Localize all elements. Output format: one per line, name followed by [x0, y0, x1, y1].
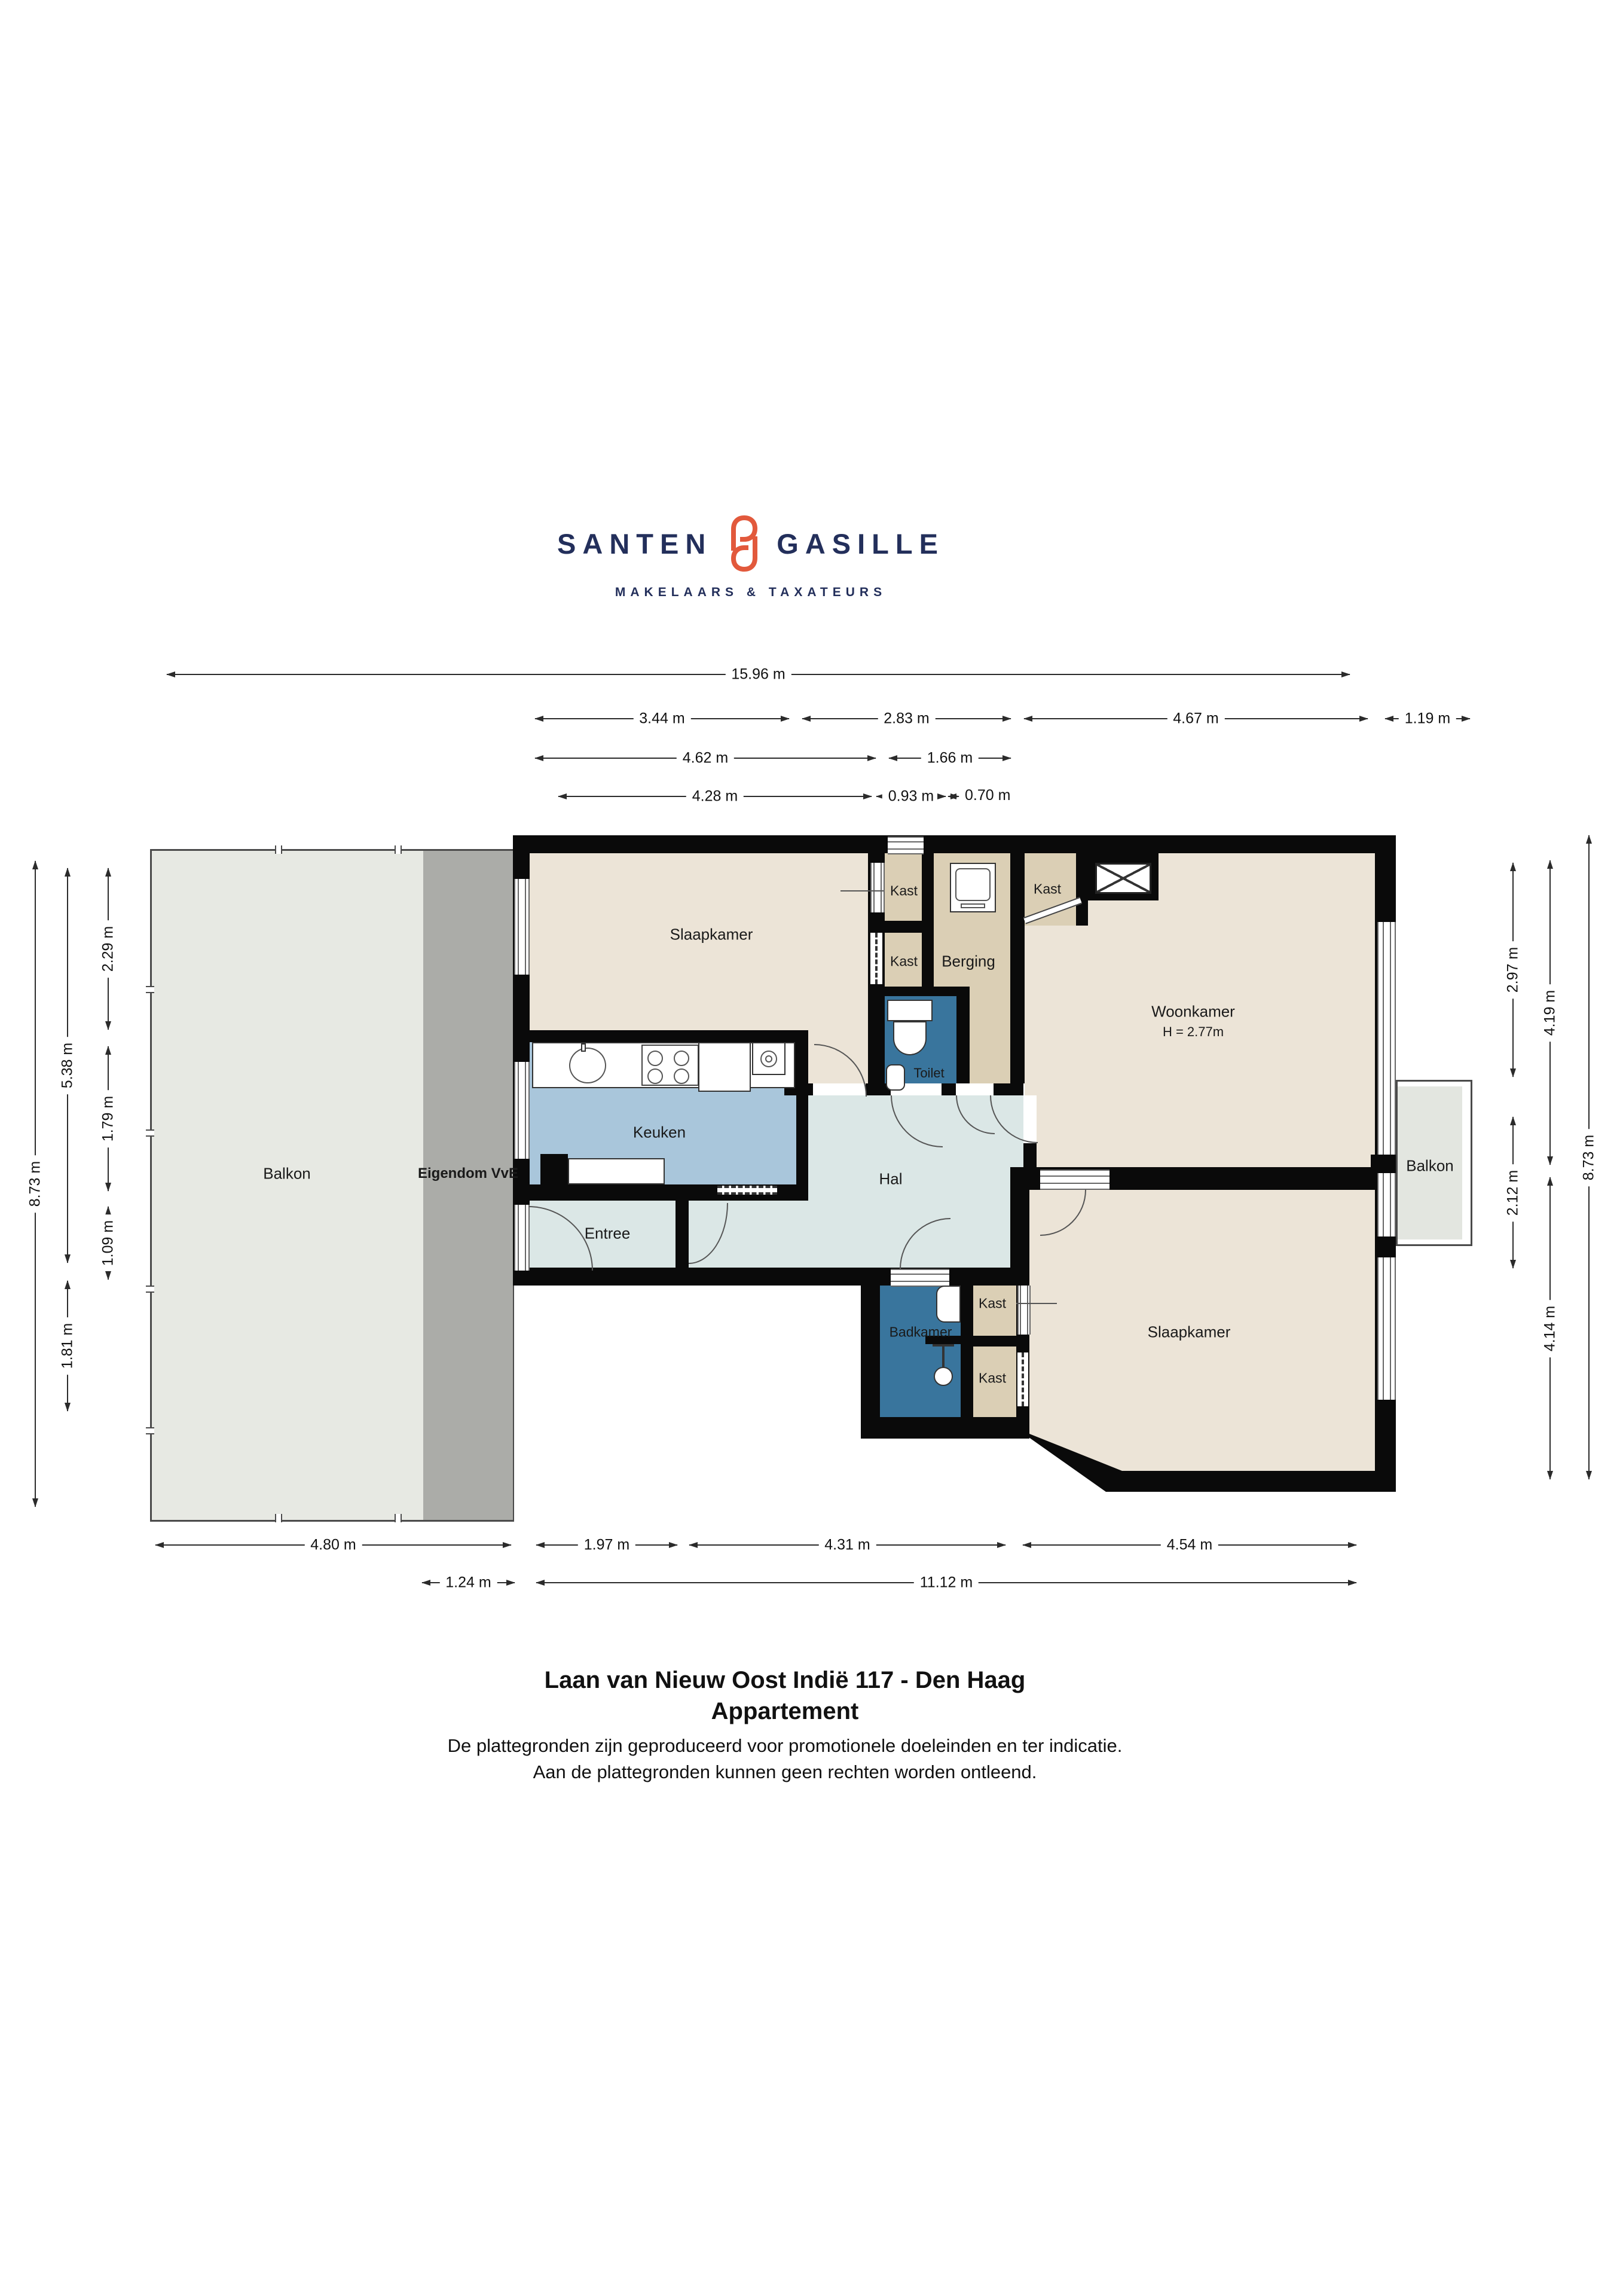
dim-right-3: 4.19 m	[1549, 860, 1551, 1165]
window	[1377, 1257, 1396, 1400]
address-title: Laan van Nieuw Oost Indië 117 - Den Haag	[0, 1665, 1570, 1696]
label-kitchen: Keuken	[633, 1123, 686, 1142]
wall	[1076, 853, 1088, 926]
label-leader	[1016, 1303, 1057, 1304]
door-gap	[891, 1269, 949, 1287]
label-balcony-left: Balkon	[263, 1165, 311, 1183]
balcony-tick	[146, 1286, 154, 1293]
balcony-tick	[395, 1514, 402, 1522]
window	[514, 1205, 530, 1271]
balcony-tick	[146, 1427, 154, 1434]
wall	[796, 1095, 808, 1184]
label-closet-3: Kast	[1034, 881, 1061, 897]
closet-door	[870, 863, 885, 912]
dim-top-1: 3.44 m	[535, 718, 789, 719]
wall	[961, 1286, 973, 1417]
dim-left-4: 1.79 m	[108, 1046, 109, 1191]
kitchen-unit	[698, 1042, 751, 1092]
kitchen-faucet-symbol	[581, 1043, 586, 1052]
label-leader	[840, 890, 884, 891]
dim-left-2: 1.81 m	[67, 1281, 68, 1411]
disclaimer-line-1: De plattegronden zijn geproduceerd voor …	[0, 1733, 1570, 1759]
label-bedroom-1: Slaapkamer	[670, 926, 753, 944]
dim-right-total: 8.73 m	[1588, 835, 1590, 1479]
dim-bottom-4: 4.54 m	[1023, 1544, 1356, 1546]
toilet-sink-symbol	[886, 1064, 905, 1091]
window	[1377, 922, 1396, 1092]
boiler-symbol	[752, 1042, 785, 1075]
wall	[1010, 853, 1025, 1083]
wall	[961, 1336, 1016, 1347]
label-storage: Berging	[942, 952, 995, 971]
balcony-tick	[275, 845, 282, 854]
floorplan-page: SANTEN GASILLE MAKELAARS & TAXATEURS 15.…	[0, 0, 1623, 2296]
wall	[861, 1417, 1029, 1439]
vve-strip	[423, 851, 513, 1520]
balcony-door	[1377, 1092, 1396, 1155]
balcony-tick	[146, 1129, 154, 1137]
dim-top-3: 4.67 m	[1024, 718, 1368, 719]
dim-right-4: 4.14 m	[1549, 1177, 1551, 1479]
shower-head-symbol	[934, 1367, 953, 1386]
dim-top-9-label: 0.70 m	[965, 787, 1010, 804]
window	[888, 836, 924, 854]
logo-tagline: MAKELAARS & TAXATEURS	[0, 585, 1502, 600]
dim-bottom-6: 11.12 m	[536, 1582, 1356, 1583]
kitchen-table	[568, 1158, 665, 1184]
dim-top-2: 2.83 m	[802, 718, 1011, 719]
wall	[513, 835, 1396, 853]
label-bathroom: Badkamer	[890, 1324, 952, 1341]
balcony-door	[1377, 1173, 1396, 1236]
window	[514, 879, 530, 975]
window	[514, 1062, 530, 1159]
label-hall: Hal	[879, 1170, 902, 1189]
logo-monogram-icon	[728, 511, 761, 576]
dim-top-9-arrows	[948, 796, 959, 797]
label-toilet: Toilet	[913, 1065, 944, 1081]
closet-door-dashed	[1017, 1352, 1028, 1406]
dim-right-1: 2.97 m	[1512, 863, 1514, 1077]
wall	[861, 1268, 880, 1439]
dim-right-2: 2.12 m	[1512, 1117, 1514, 1268]
dim-left-1: 5.38 m	[67, 868, 68, 1263]
dim-bottom-3: 4.31 m	[689, 1544, 1005, 1546]
kitchen-pass-through	[717, 1186, 777, 1195]
floor-subtitle: Appartement	[0, 1696, 1570, 1727]
wall	[868, 921, 922, 933]
label-entry: Entree	[585, 1225, 631, 1243]
stove-symbol	[641, 1045, 699, 1086]
label-ceiling-height: H = 2.77m	[1163, 1024, 1224, 1040]
dim-top-6: 1.66 m	[889, 758, 1011, 759]
label-closet-2: Kast	[890, 954, 918, 970]
logo-text-left: SANTEN	[557, 527, 712, 560]
dim-top-5: 4.62 m	[535, 758, 876, 759]
kitchen-sink-symbol	[569, 1048, 606, 1083]
wall	[868, 987, 970, 996]
interior-window	[1040, 1170, 1109, 1190]
dim-bottom-5: 1.24 m	[422, 1582, 515, 1583]
label-living-room: Woonkamer	[1151, 1003, 1235, 1021]
dim-bottom-1: 4.80 m	[155, 1544, 511, 1546]
balcony-tick	[275, 1514, 282, 1522]
toilet-tank-symbol	[887, 1000, 933, 1021]
dim-top-total: 15.96 m	[167, 674, 1350, 675]
closet-door-dashed	[870, 933, 882, 984]
logo-text-right: GASILLE	[777, 527, 945, 560]
washer-symbol	[950, 863, 996, 912]
wall	[1371, 1155, 1397, 1173]
closet-door	[1017, 1286, 1031, 1335]
wall	[530, 1030, 796, 1042]
label-closet-1: Kast	[890, 883, 918, 899]
dim-left-5: 1.09 m	[108, 1207, 109, 1280]
dim-top-7: 4.28 m	[558, 796, 872, 797]
door-gap	[956, 1083, 994, 1095]
balcony-tick	[146, 986, 154, 993]
wall	[956, 996, 970, 1083]
dim-left-total: 8.73 m	[35, 861, 36, 1507]
dim-top-4: 1.19 m	[1385, 718, 1470, 719]
agency-logo: SANTEN GASILLE MAKELAARS & TAXATEURS	[0, 511, 1502, 600]
wall	[540, 1154, 568, 1184]
label-vve: Eigendom VvE	[418, 1165, 518, 1182]
footer-block: Laan van Nieuw Oost Indië 117 - Den Haag…	[0, 1665, 1570, 1785]
label-bedroom-2: Slaapkamer	[1148, 1323, 1231, 1342]
dim-top-8: 0.93 m	[876, 796, 946, 797]
toilet-bowl-symbol	[893, 1021, 927, 1055]
dim-bottom-2: 1.97 m	[536, 1544, 677, 1546]
wall	[922, 853, 934, 987]
balcony-tick	[395, 845, 402, 854]
shower-hose-symbol	[942, 1347, 945, 1368]
disclaimer-line-2: Aan de plattegronden kunnen geen rechten…	[0, 1759, 1570, 1785]
wall	[676, 1201, 689, 1268]
shaft-symbol	[1095, 863, 1151, 894]
dim-left-3: 2.29 m	[108, 868, 109, 1030]
label-closet-5: Kast	[979, 1370, 1006, 1387]
label-balcony-right: Balkon	[1406, 1157, 1454, 1176]
label-closet-4: Kast	[979, 1296, 1006, 1312]
bathroom-sink-symbol	[936, 1286, 961, 1323]
